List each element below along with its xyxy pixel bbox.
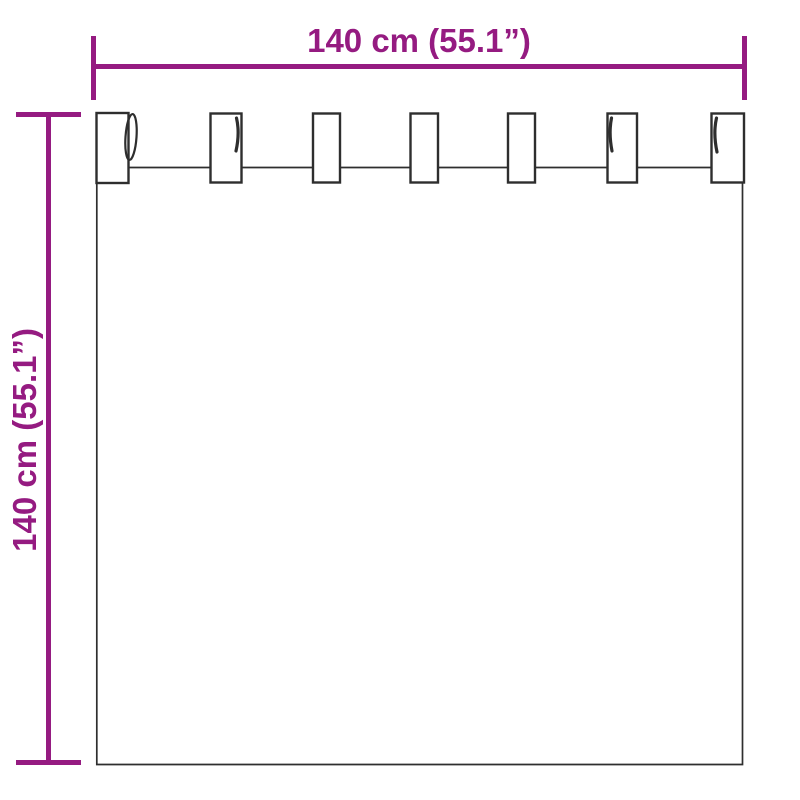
height-dimension-label: 140 cm (55.1”) [8,328,42,552]
curtain-outline [97,168,743,765]
width-dimension-line [93,64,745,69]
curtain-line-drawing [0,0,800,800]
curtain-tab-2 [211,114,242,183]
curtain-tab-5 [508,114,535,183]
tab-fold-shading [610,118,612,151]
product-dimension-image: 140 cm (55.1”) 140 cm (55.1”) [0,0,800,800]
curtain-tab-4 [411,114,439,183]
curtain-tab-3 [313,114,340,183]
curtain-tab-6 [608,114,638,183]
curtain-tab-7 [712,114,745,183]
width-dimension-label: 140 cm (55.1”) [93,24,745,58]
curtain-tab-1 [97,113,139,183]
height-dimension-label-box: 140 cm (55.1”) [2,114,48,765]
